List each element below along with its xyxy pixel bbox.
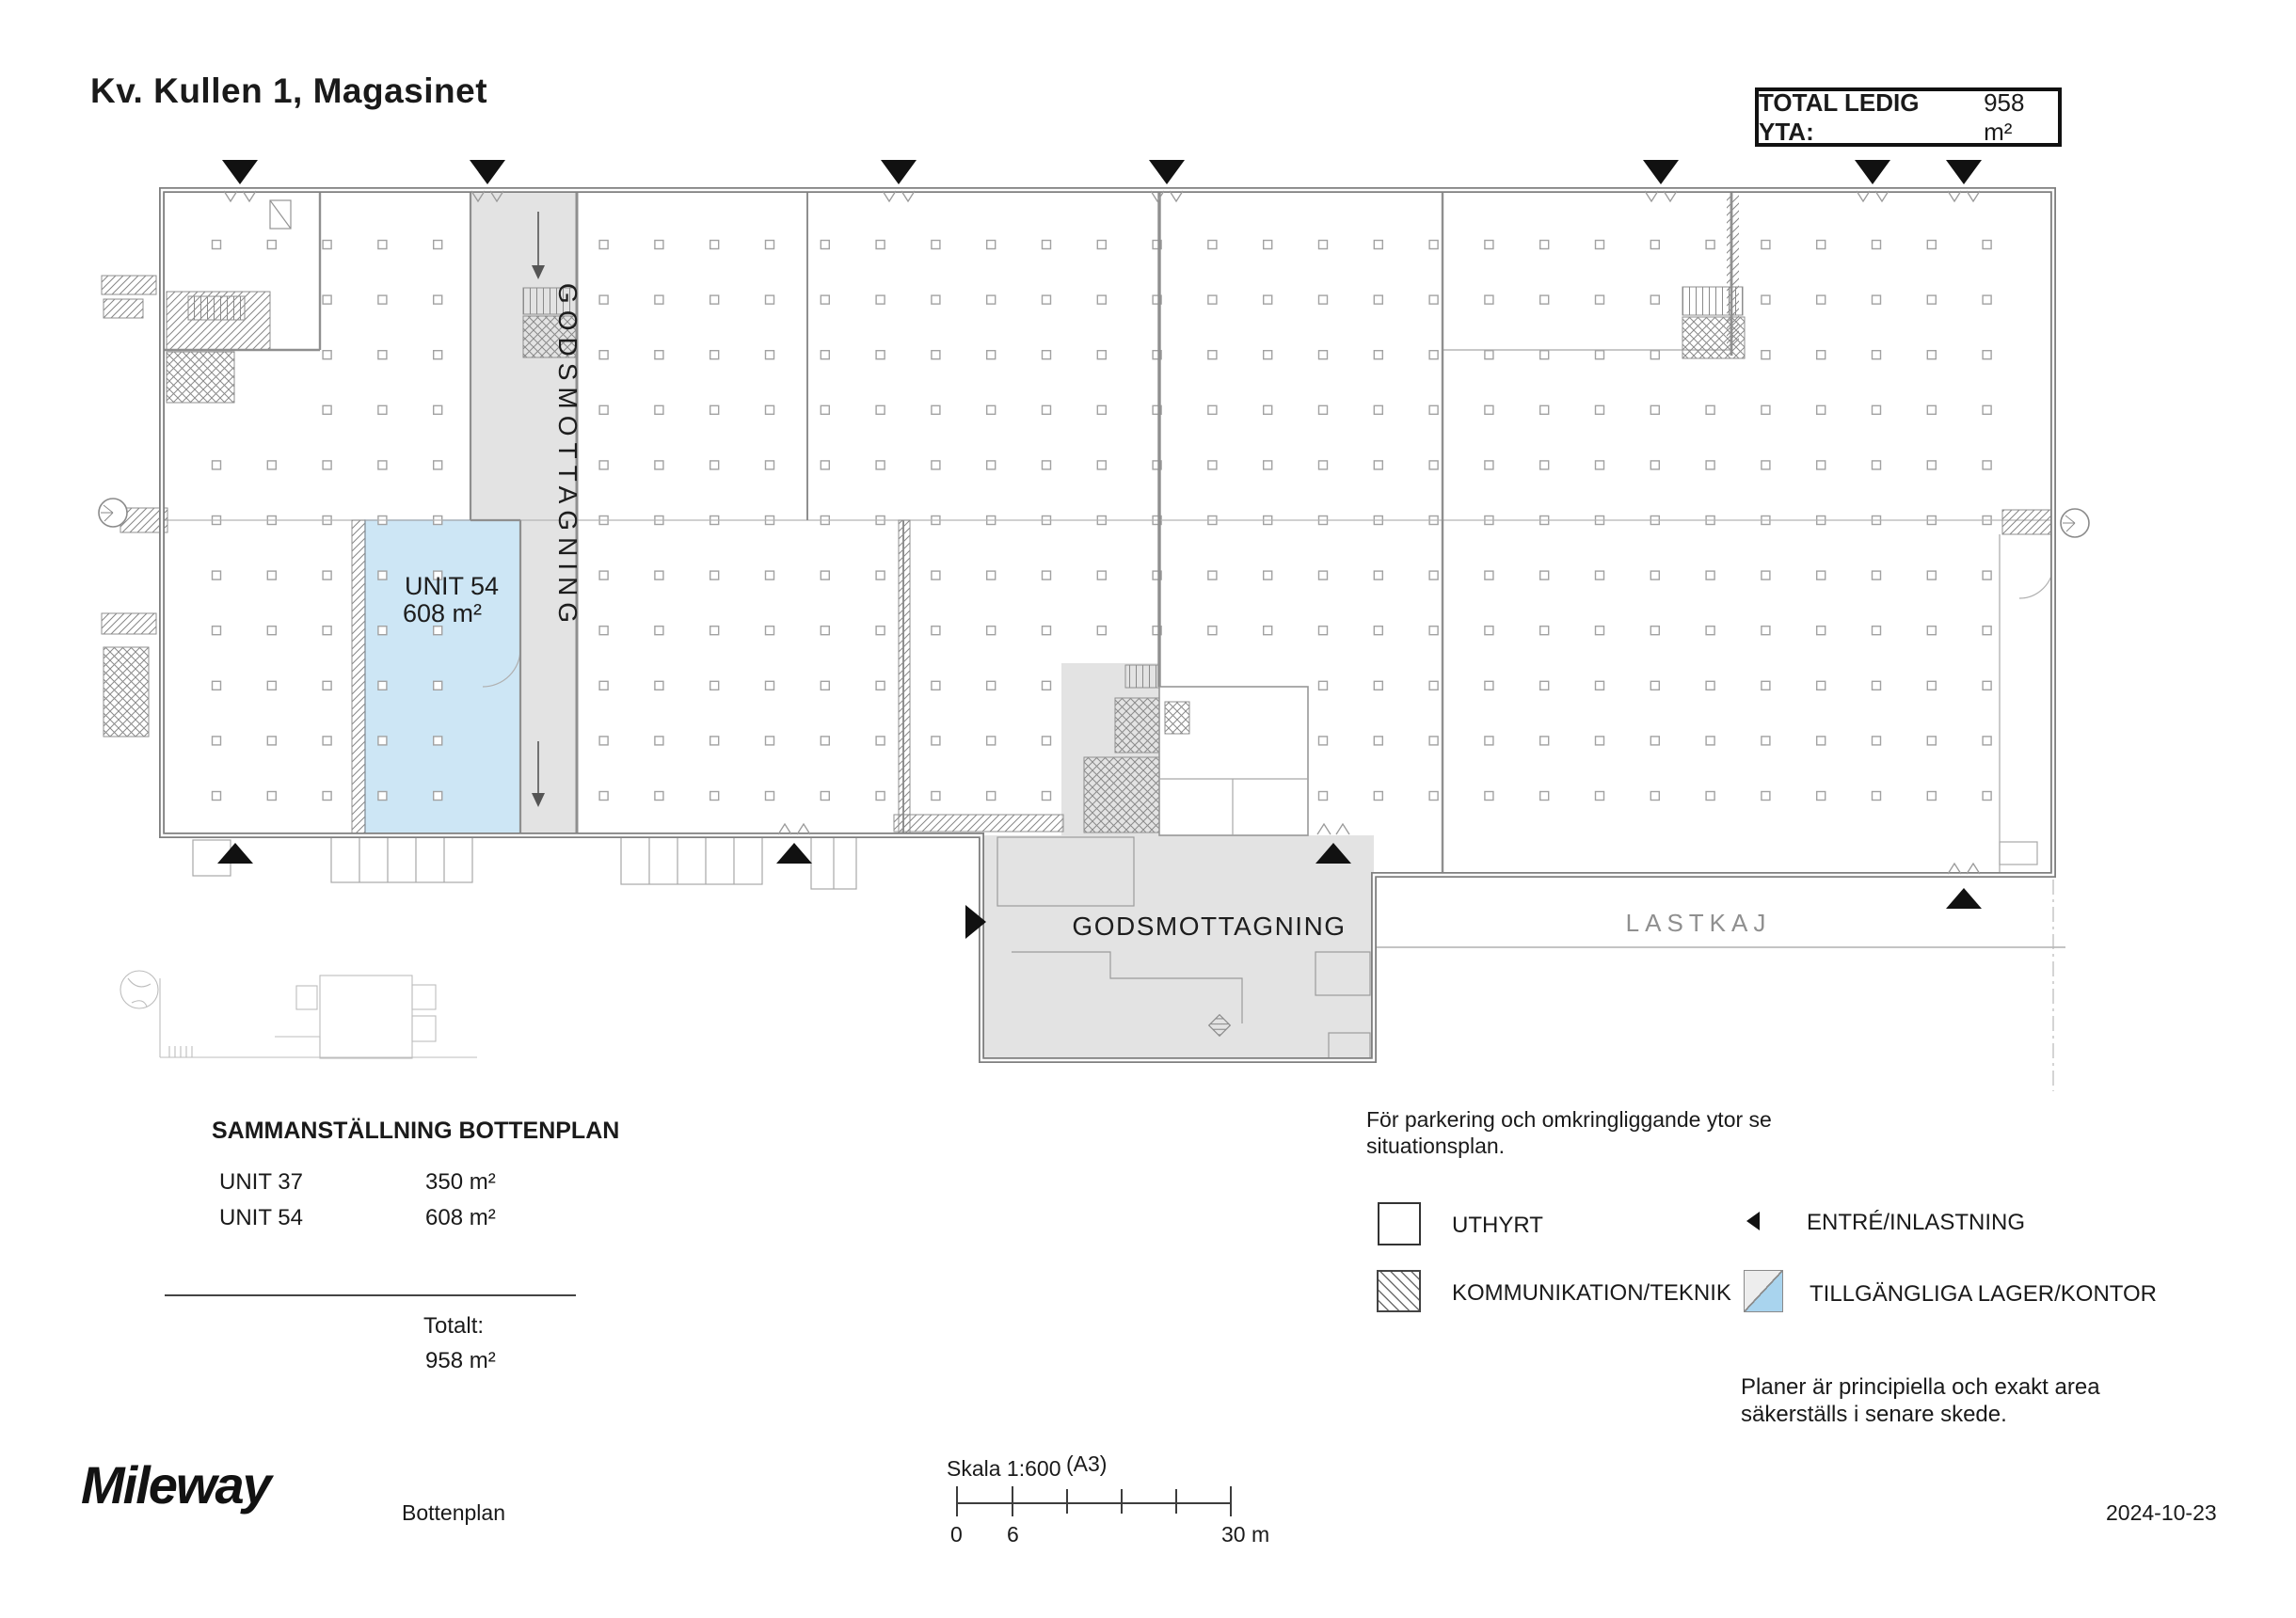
- summary-total-label: Totalt:: [423, 1313, 484, 1340]
- summary-heading: SAMMANSTÄLLNING BOTTENPLAN: [212, 1118, 619, 1145]
- summary-row-area: 350 m²: [425, 1169, 496, 1196]
- uthyrt-swatch-icon: [1378, 1202, 1421, 1245]
- entrance-triangle-icon: [1643, 160, 1679, 184]
- plan-name: Bottenplan: [402, 1500, 505, 1526]
- scale-tick-0: 0: [950, 1522, 963, 1547]
- entre-arrow-icon: [1746, 1212, 1760, 1230]
- entrance-triangle-icon: [881, 160, 917, 184]
- entrance-triangle-icon: [1946, 160, 1982, 184]
- total-area-box: TOTAL LEDIG YTA: 958 m²: [1755, 87, 2062, 147]
- scale-bar-line: [957, 1502, 1232, 1504]
- kommunikation-label: KOMMUNIKATION/TEKNIK: [1452, 1280, 1731, 1307]
- summary-divider: [165, 1294, 576, 1296]
- entrance-triangle-icon: [217, 843, 253, 864]
- entrance-triangle-icon: [222, 160, 258, 184]
- tillgangliga-swatch-icon: [1744, 1270, 1783, 1312]
- summary-row-area: 608 m²: [425, 1205, 496, 1231]
- summary-row-unit: UNIT 37: [219, 1169, 303, 1196]
- entrance-triangle-icon: [776, 843, 812, 864]
- floor-plan-drawing: UNIT 54 608 m² GODSMOTTAGNING GODSMOTTAG…: [0, 0, 2296, 1176]
- paper-size-label: (A3): [1066, 1451, 1107, 1477]
- tech-room: [1159, 687, 1308, 835]
- disclaimer-note: Planer är principiella och exakt area sä…: [1741, 1373, 2100, 1429]
- site-context-sketch: [120, 971, 477, 1058]
- annex-zone: [981, 835, 1374, 1060]
- unit-54-area-label: 608 m²: [403, 599, 482, 627]
- entrance-triangle-icon: [1946, 888, 1982, 909]
- kommunikation-swatch-icon: [1377, 1270, 1421, 1312]
- scale-tick-30: 30 m: [1221, 1522, 1269, 1547]
- uthyrt-label: UTHYRT: [1452, 1213, 1543, 1239]
- unit-54-area: [365, 520, 520, 833]
- summary-total-value: 958 m²: [425, 1348, 496, 1374]
- scale-label: Skala 1:600: [947, 1456, 1060, 1482]
- unit-54-label: UNIT 54: [405, 572, 499, 600]
- annex-label: GODSMOTTAGNING: [1072, 912, 1346, 941]
- corridor-label: GODSMOTTAGNING: [553, 283, 582, 629]
- parking-note: För parkering och omkringliggande ytor s…: [1366, 1106, 1772, 1159]
- entrance-triangle-icon: [1855, 160, 1890, 184]
- entrance-triangle-icon: [1149, 160, 1185, 184]
- tillgangliga-label: TILLGÄNGLIGA LAGER/KONTOR: [1810, 1281, 2157, 1308]
- page-title: Kv. Kullen 1, Magasinet: [90, 71, 487, 111]
- scale-tick-6: 6: [1007, 1522, 1019, 1547]
- total-area-label: TOTAL LEDIG YTA:: [1759, 88, 1975, 147]
- mileway-logo: Mileway: [81, 1454, 270, 1515]
- summary-row-unit: UNIT 54: [219, 1205, 303, 1231]
- entre-label: ENTRÉ/INLASTNING: [1807, 1210, 2025, 1236]
- lastkaj-label: LASTKAJ: [1626, 909, 1772, 937]
- total-area-value: 958 m²: [1984, 88, 2058, 147]
- entrance-triangle-icon: [470, 160, 505, 184]
- date-label: 2024-10-23: [2106, 1500, 2217, 1526]
